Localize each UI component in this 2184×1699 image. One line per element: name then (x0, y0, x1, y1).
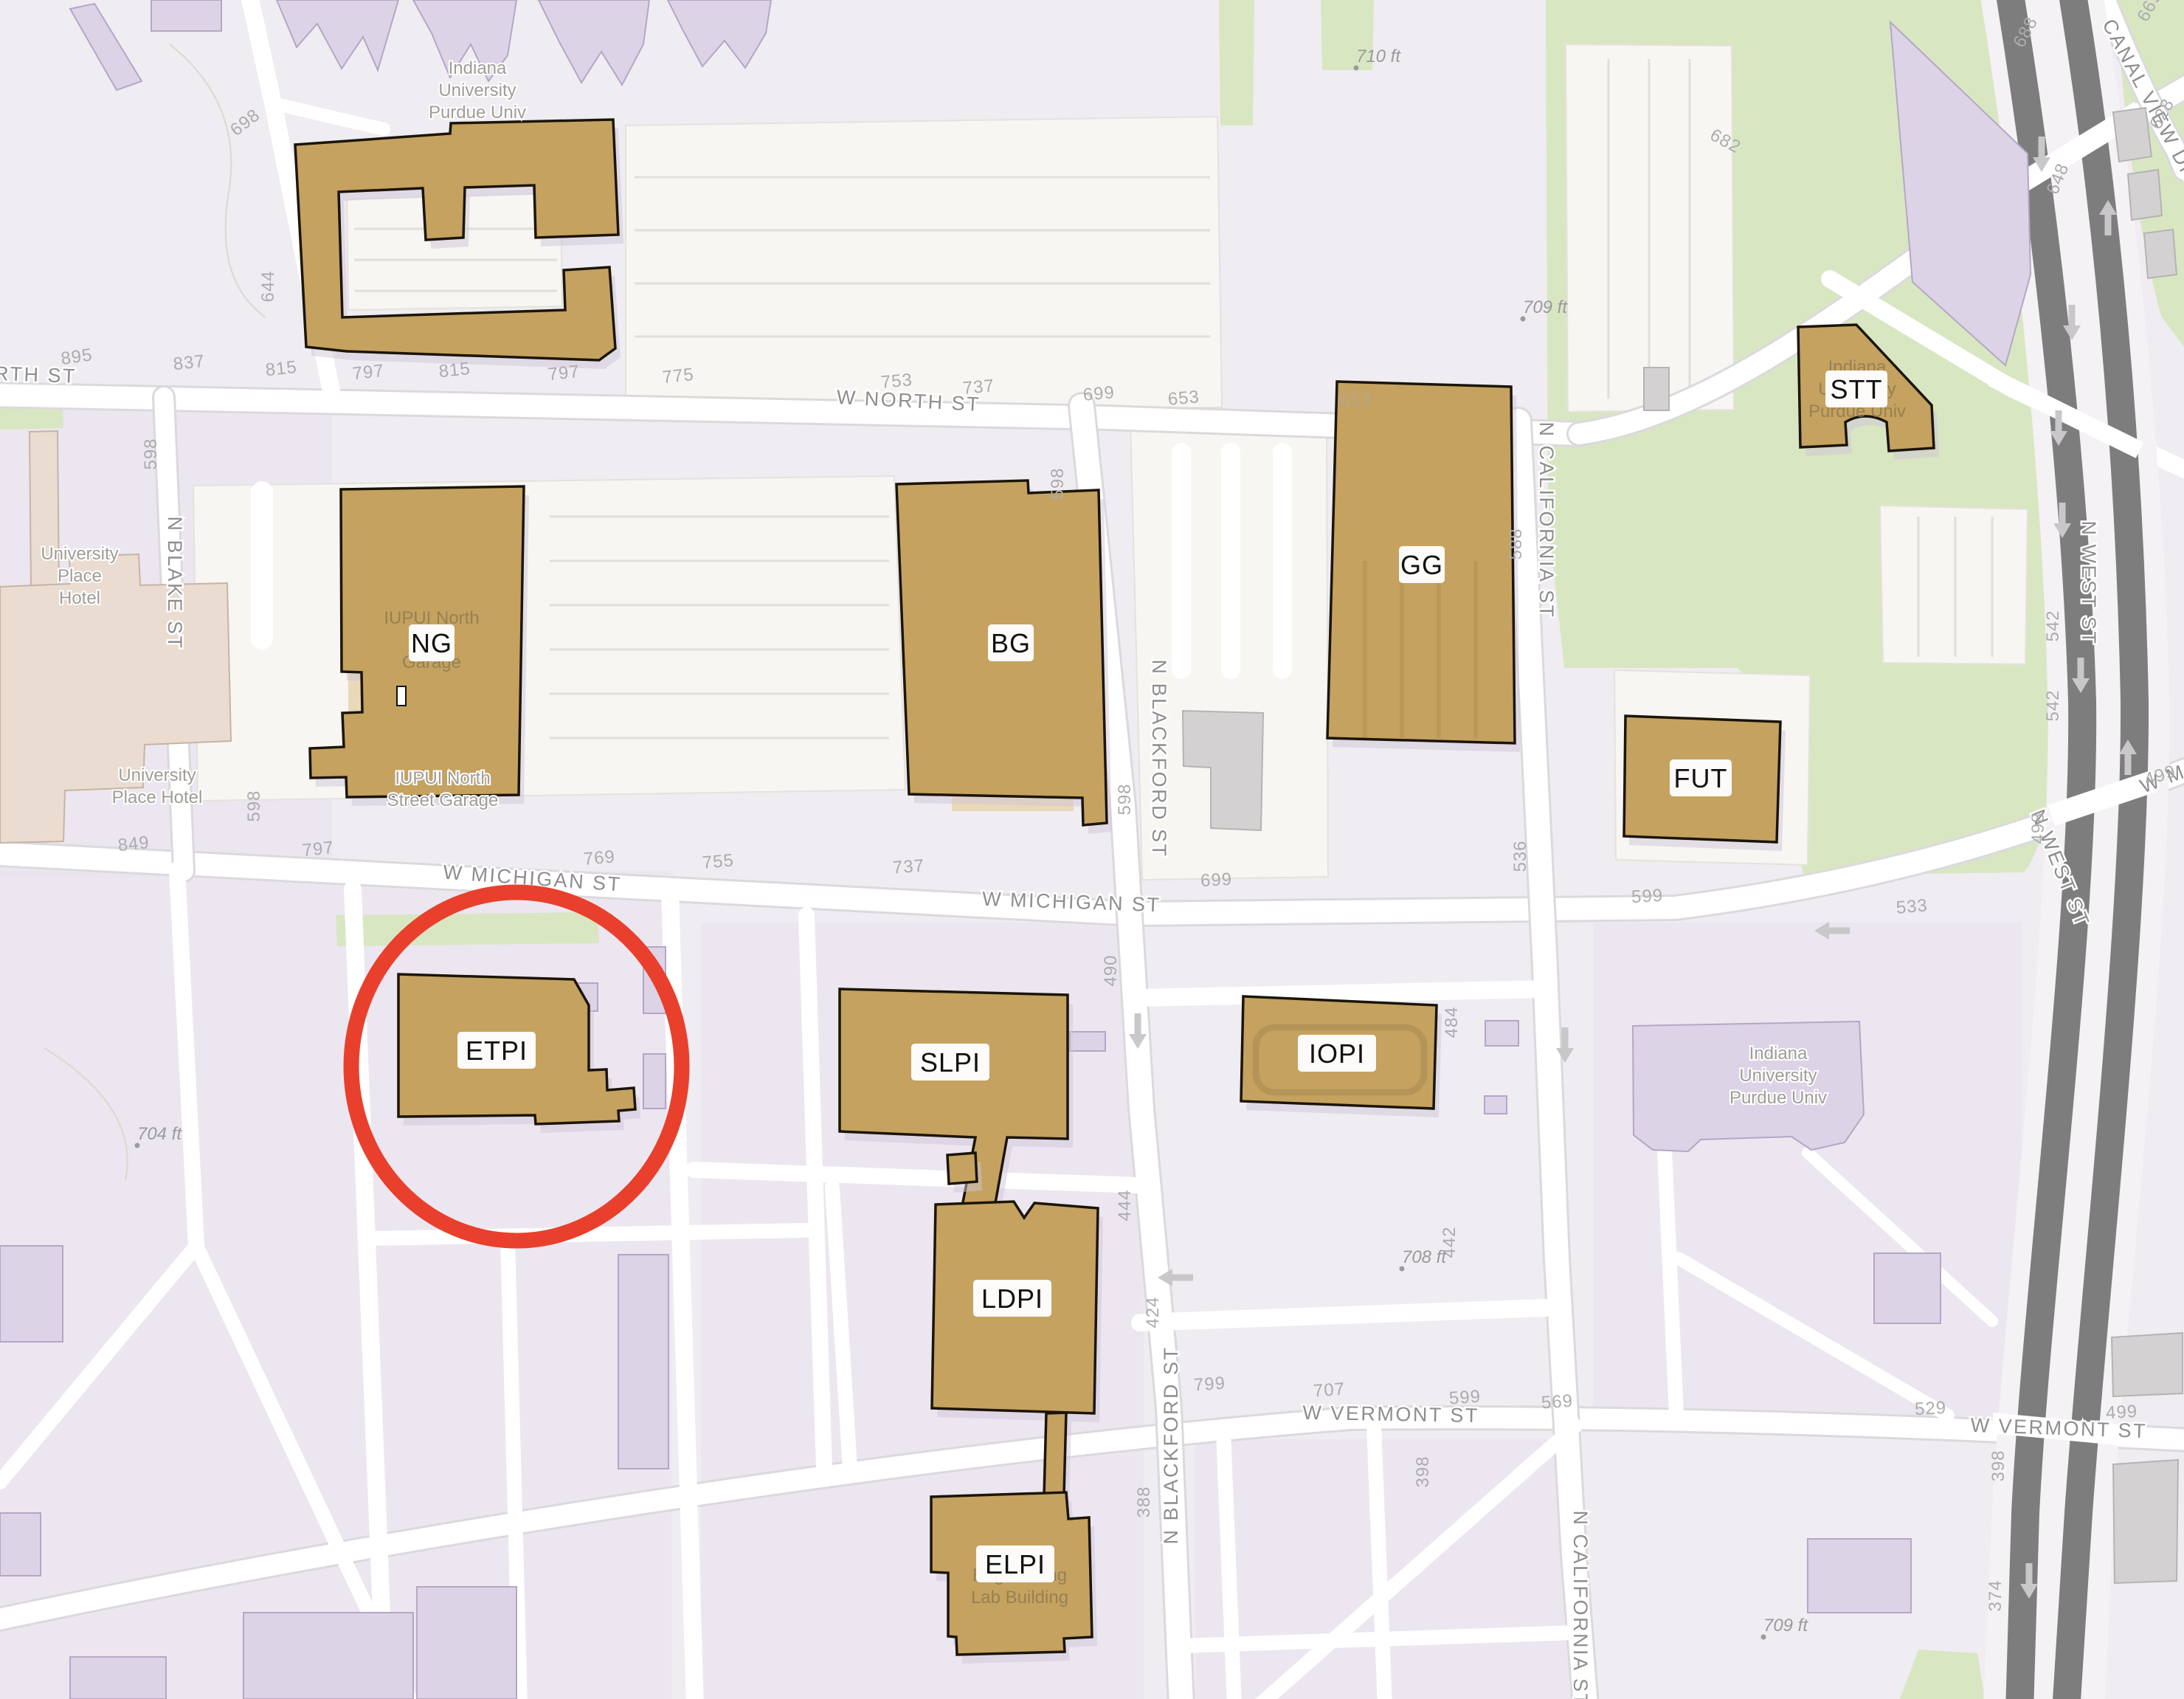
campus-building (1485, 1021, 1518, 1046)
green-area (1219, 0, 1254, 125)
campus-building (0, 1246, 63, 1342)
parcel-number: 398 (1413, 1455, 1433, 1487)
parcel-number: 797 (301, 838, 335, 861)
elevation-label: 704 ft (137, 1124, 182, 1144)
street-label: N CALIFORNIA ST (1535, 421, 1558, 618)
street-label: N WEST ST (2078, 520, 2100, 645)
parcel-number: 499 (2105, 1402, 2138, 1423)
parcel-number: 753 (880, 370, 913, 393)
parcel-number: 598 (141, 438, 161, 469)
parcel-number: 569 (1541, 1391, 1574, 1413)
campus-building (1874, 1253, 1941, 1323)
parcel-number: 498 (2028, 812, 2048, 844)
building-code-bg[interactable]: BG (991, 628, 1031, 658)
parcel-number: 398 (1988, 1450, 2008, 1481)
street-side (1140, 989, 1544, 998)
elevation-label: 708 ft (1402, 1247, 1447, 1267)
parcel-number: 755 (702, 850, 735, 873)
campus-building (70, 1657, 166, 1699)
parcel-number: 849 (117, 833, 151, 855)
parcel-number: 533 (1896, 895, 1929, 918)
parcel-number: 769 (583, 847, 616, 869)
parcel-number: 775 (661, 365, 695, 387)
parcel-number: 644 (258, 270, 278, 302)
campus-map[interactable]: IndianaUniversityPurdue UnivUniversityPl… (0, 0, 2184, 1699)
building-slpi2[interactable] (947, 1153, 977, 1184)
parcel-number: 598 (1115, 783, 1135, 815)
campus-building (618, 1255, 668, 1469)
parcel-number: 699 (1200, 869, 1232, 891)
building-code-fut[interactable]: FUT (1674, 763, 1728, 793)
campus-building (1070, 1032, 1105, 1051)
parking-lot (626, 117, 1222, 413)
parking-lane (1172, 443, 1191, 679)
parcel-number: 599 (1448, 1387, 1482, 1409)
grey-building (2113, 108, 2152, 162)
campus-map-canvas[interactable]: IndianaUniversityPurdue UnivUniversityPl… (0, 0, 2184, 1699)
building-code-stt[interactable]: STT (1831, 374, 1883, 404)
street-label: N CALIFORNIA ST (1569, 1510, 1592, 1699)
parcel-number: 815 (438, 359, 471, 382)
campus-building (643, 1054, 666, 1109)
street-label: N BLACKFORD ST (1160, 1345, 1182, 1544)
parcel-number: 529 (1914, 1398, 1946, 1419)
parcel-number: 598 (244, 790, 264, 821)
elevation-label: 709 ft (1523, 297, 1568, 317)
parcel-number: 598 (1048, 467, 1068, 499)
building-ldpi2[interactable] (1044, 1413, 1066, 1495)
building-code-ng[interactable]: NG (411, 628, 452, 658)
building-code-iopi[interactable]: IOPI (1309, 1038, 1365, 1069)
campus-building (151, 0, 221, 31)
city-block (1594, 923, 2022, 1424)
parcel-number: 799 (1193, 1374, 1226, 1396)
parking-lane (251, 481, 273, 649)
parking-lot (193, 476, 905, 801)
grey-building (2128, 170, 2162, 220)
campus-building (1808, 1539, 1911, 1613)
parcel-number: 737 (962, 376, 995, 399)
parcel-number: 837 (172, 351, 206, 374)
parcel-number: 699 (1082, 382, 1116, 405)
elevation-label: 710 ft (1356, 46, 1401, 66)
campus-building (0, 1513, 41, 1576)
university-place-hotel-building (30, 431, 59, 591)
building-code-gg[interactable]: GG (1400, 550, 1443, 580)
parcel-number: 797 (351, 361, 385, 384)
parcel-number: 490 (1101, 954, 1121, 986)
grey-building (2113, 1460, 2178, 1583)
grey-building (2112, 1333, 2183, 1396)
building-code-slpi[interactable]: SLPI (920, 1047, 981, 1078)
parcel-number: 653 (1167, 387, 1200, 410)
parcel-number: 707 (1313, 1379, 1346, 1402)
parking-lot (1880, 506, 2028, 664)
parcel-number: 374 (1986, 1579, 2005, 1611)
elevation-label: 709 ft (1763, 1616, 1808, 1636)
parcel-number: 588 (1506, 528, 1526, 559)
green-area (336, 912, 599, 946)
parcel-number: 737 (892, 856, 925, 878)
parking-lane (1273, 443, 1292, 679)
parcel-number: 424 (1143, 1296, 1163, 1328)
street-label: N BLAKE ST (164, 516, 186, 649)
parcel-number: 536 (1510, 840, 1530, 872)
campus-building (243, 1613, 413, 1699)
campus-building (1485, 1096, 1507, 1114)
street-label: N BLACKFORD ST (1148, 659, 1170, 858)
parcel-number: 797 (547, 362, 581, 385)
parcel-number: 542 (2043, 689, 2063, 721)
parcel-number: 815 (264, 357, 298, 380)
parcel-number: 484 (1442, 1006, 1462, 1038)
garage-opening (397, 686, 406, 706)
grey-building (2144, 230, 2177, 278)
parcel-number: 599 (1631, 886, 1663, 907)
parcel-number: 388 (1134, 1486, 1154, 1517)
building-code-elpi[interactable]: ELPI (985, 1549, 1046, 1579)
parcel-number: 653 (1339, 388, 1372, 411)
grey-building (1644, 368, 1669, 410)
parcel-number: 444 (1115, 1189, 1135, 1221)
building-code-ldpi[interactable]: LDPI (981, 1283, 1043, 1314)
parking-lane (1221, 443, 1240, 679)
parcel-number: 542 (2043, 610, 2063, 641)
building-code-etpi[interactable]: ETPI (466, 1035, 528, 1066)
campus-building (417, 1587, 516, 1699)
campus-building (1633, 1021, 1864, 1151)
